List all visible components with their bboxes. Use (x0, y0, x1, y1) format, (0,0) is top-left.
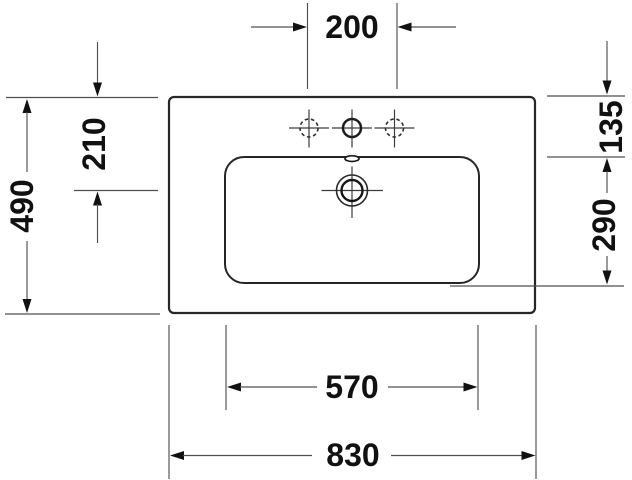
arrow-right-icon (464, 383, 478, 392)
dim-label-570: 570 (325, 369, 378, 405)
arrow-left-icon (170, 451, 184, 460)
arrow-up-icon (93, 192, 102, 206)
dimension-top-200: 200 (251, 3, 456, 89)
arrow-left-icon (227, 383, 241, 392)
dim-label-830: 830 (326, 437, 379, 473)
arrow-down-icon (93, 83, 102, 97)
drain-hole (322, 167, 384, 219)
arrow-down-icon (23, 299, 32, 313)
faucet-hole-left (289, 110, 329, 148)
dimension-bottom-570: 570 (226, 325, 478, 410)
dim-label-200: 200 (325, 9, 378, 45)
dimension-right-290: 290 (586, 158, 622, 285)
dimension-left-210: 210 (76, 42, 112, 243)
arrow-up-icon (23, 99, 32, 113)
arrow-down-icon (603, 81, 612, 95)
arrow-down-icon (603, 271, 612, 285)
arrow-up-icon (603, 158, 612, 172)
drawing-canvas: 200 490 210 135 290 (0, 0, 632, 480)
technical-drawing: 200 490 210 135 290 (0, 0, 632, 480)
dimension-right-135: 135 (593, 41, 629, 154)
basin (169, 97, 535, 313)
dim-label-490: 490 (4, 179, 40, 232)
arrow-right-icon (522, 451, 536, 460)
dim-label-290: 290 (586, 198, 622, 251)
dim-label-135: 135 (593, 100, 629, 153)
arrow-right-icon (293, 23, 307, 32)
dim-label-210: 210 (76, 117, 112, 170)
overflow-slot (345, 156, 359, 162)
faucet-hole-center (332, 110, 372, 148)
faucet-hole-right (375, 110, 415, 148)
dimension-left-490: 490 (4, 99, 40, 313)
arrow-left-icon (398, 23, 412, 32)
